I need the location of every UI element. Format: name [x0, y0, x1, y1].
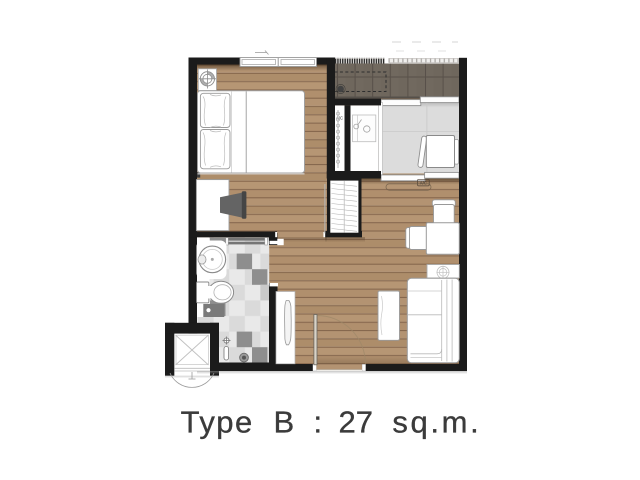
svg-text:B: B [274, 405, 295, 440]
svg-text::: : [314, 405, 323, 440]
svg-text:A/C: A/C [420, 180, 427, 185]
svg-text:27: 27 [339, 405, 373, 440]
svg-text:sq.m.: sq.m. [392, 405, 478, 440]
svg-text:Type: Type [181, 405, 253, 440]
